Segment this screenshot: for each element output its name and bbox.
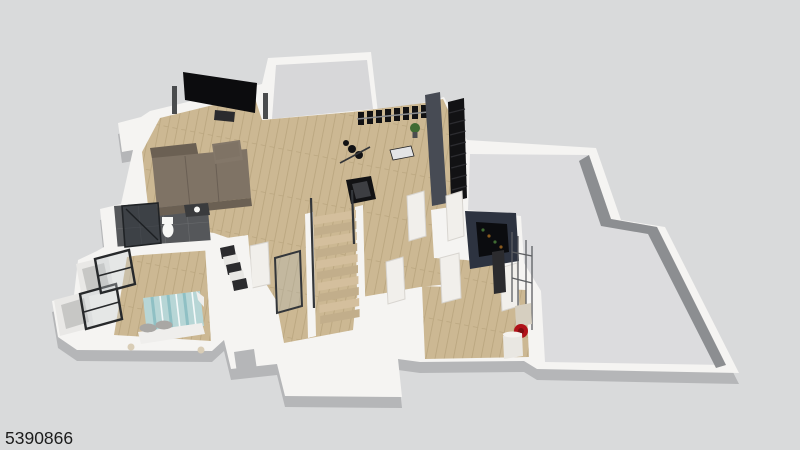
- water-heater: [503, 332, 523, 360]
- open-door-3: [386, 257, 405, 304]
- storage-room-floor: [272, 60, 373, 119]
- electrical-panel: [492, 250, 506, 294]
- closet: [212, 235, 253, 297]
- table-lamp-left: [128, 344, 135, 351]
- open-door-2: [446, 191, 464, 241]
- pillow-white-2: [160, 329, 178, 339]
- open-door-1: [407, 191, 426, 241]
- treadmill: [346, 176, 376, 204]
- vanity: [184, 203, 210, 217]
- glass-shower: [122, 203, 161, 247]
- media-console: [214, 110, 235, 122]
- floor-plan-render: 5390866: [0, 0, 800, 450]
- toilet: [162, 217, 174, 238]
- listing-id-watermark: 5390866: [5, 428, 73, 448]
- tower-speaker-left: [172, 86, 177, 114]
- pillow-white-1: [143, 332, 161, 342]
- expansion-tank: [515, 303, 532, 327]
- open-door-4: [440, 253, 461, 303]
- wet-bar: [465, 211, 519, 269]
- glass-railing: [275, 251, 302, 313]
- front-step-shadow: [234, 349, 257, 373]
- table-lamp-right: [198, 347, 205, 354]
- tower-speaker-right: [263, 93, 268, 119]
- pillow-gray-1: [140, 324, 157, 333]
- floor-plan-screenshot: 5390866: [0, 0, 800, 450]
- pillow-gray-2: [156, 321, 173, 330]
- bedroom-door: [250, 242, 270, 288]
